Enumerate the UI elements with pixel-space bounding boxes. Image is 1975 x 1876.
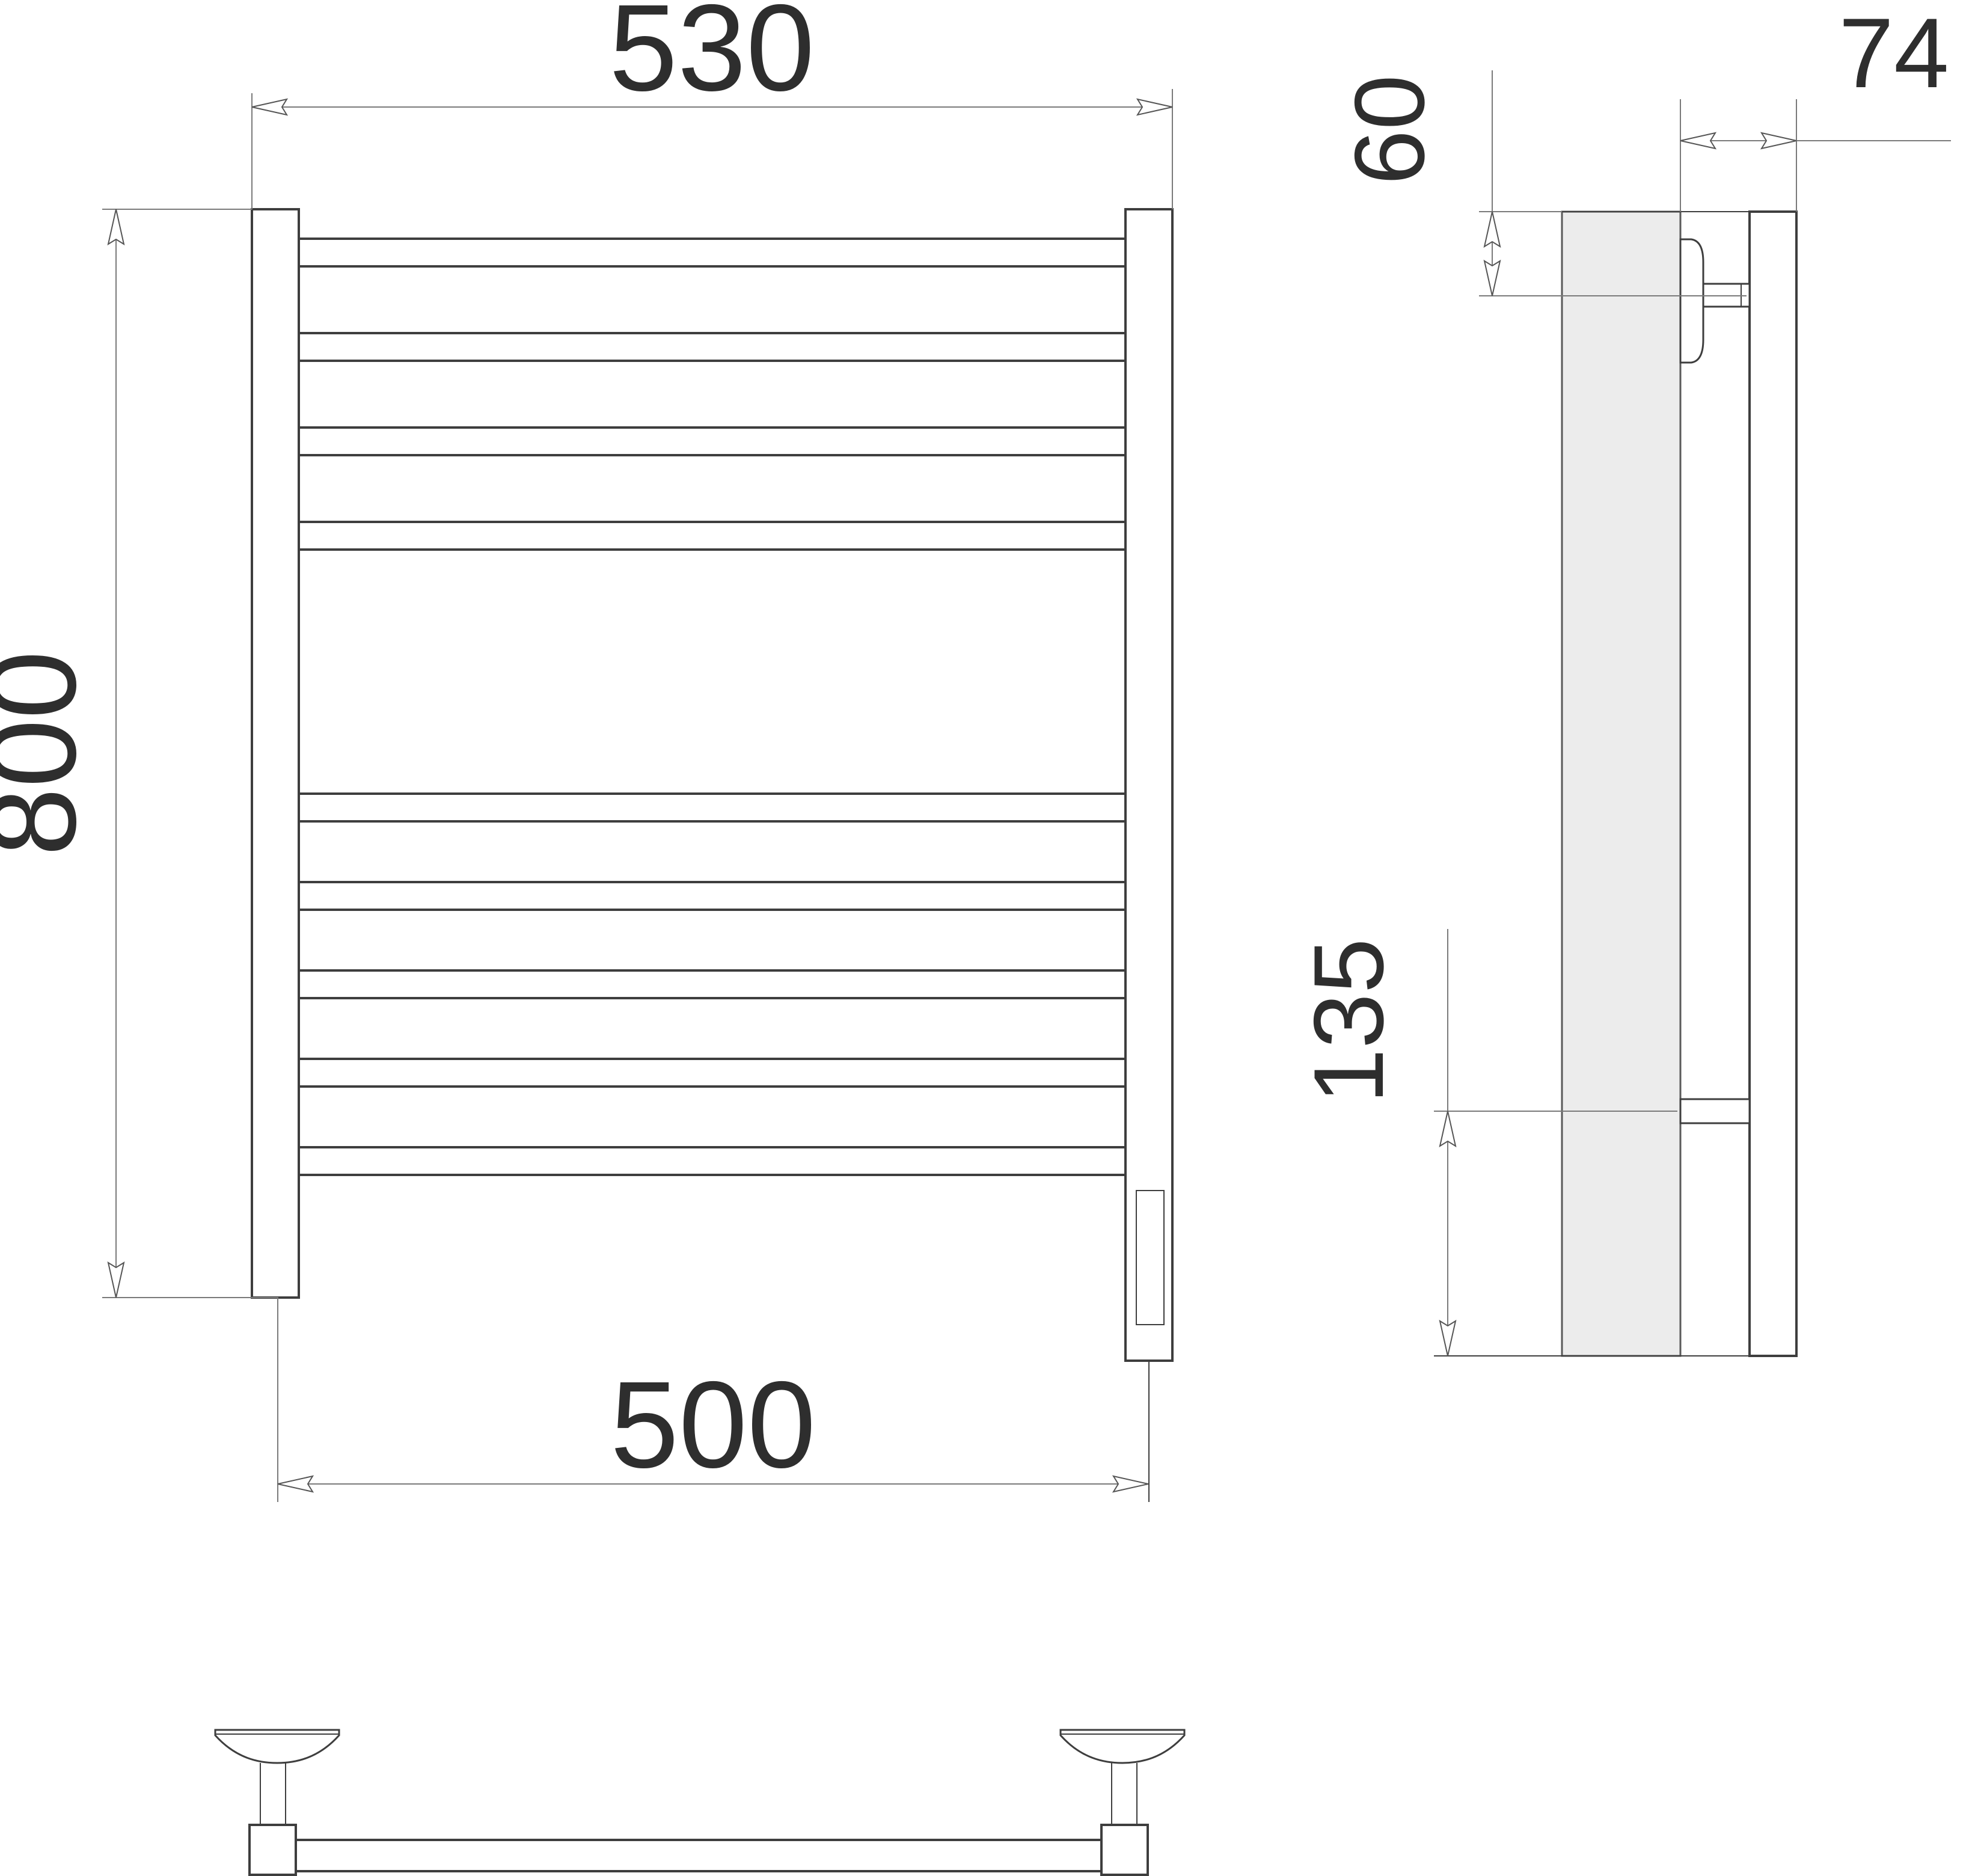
dim-60-text: 60: [1334, 75, 1445, 185]
rung-5: [299, 794, 1125, 821]
wall-section: [1562, 212, 1680, 1356]
rung-group: [299, 239, 1125, 1175]
dim-500-arrow-left: [278, 1476, 313, 1492]
side-view: [1434, 212, 1796, 1356]
rung-8: [299, 1059, 1125, 1087]
dim-135-arrow-top: [1440, 1111, 1456, 1146]
rung-6: [299, 882, 1125, 910]
dim-800-arrow-bottom: [108, 1263, 124, 1298]
drawing-sheet: 530 800 500 74: [0, 0, 1975, 1876]
rung-4: [299, 522, 1125, 550]
dim-74-text: 74: [1839, 0, 1949, 108]
rung-9: [299, 1147, 1125, 1175]
front-view: [252, 209, 1172, 1502]
rung-2: [299, 333, 1125, 361]
dim-530-arrow-right: [1138, 99, 1172, 115]
rung-1: [299, 239, 1125, 266]
towel-rail-technical-drawing: 530 800 500 74: [0, 0, 1975, 1876]
dim-74-arrow-right: [1762, 133, 1796, 149]
rung-3: [299, 428, 1125, 455]
bottom-left-collar: [250, 1825, 296, 1875]
dim-800: 800: [0, 209, 278, 1298]
bottom-right-collar: [1101, 1825, 1148, 1875]
dim-74-arrow-left: [1680, 133, 1715, 149]
bottom-bracket-arm: [1680, 1099, 1750, 1123]
bottom-left-escutcheon: [215, 1730, 339, 1763]
bottom-view-bar: [296, 1840, 1101, 1871]
dim-530-arrow-left: [252, 99, 287, 115]
top-bracket-escutcheon: [1680, 239, 1703, 363]
dim-500: 500: [278, 1298, 1148, 1502]
dim-500-arrow-right: [1113, 1476, 1148, 1492]
dim-60-arrow-bottom: [1484, 261, 1500, 296]
dim-530-text: 530: [609, 0, 815, 117]
side-post: [1750, 212, 1796, 1356]
dim-135-arrow-bottom: [1440, 1321, 1456, 1356]
dim-135-text: 135: [1293, 938, 1404, 1103]
dim-530: 530: [252, 0, 1172, 209]
front-left-post: [252, 209, 299, 1298]
dim-74: 74: [1680, 0, 1951, 212]
dim-500-text: 500: [610, 1356, 816, 1494]
dim-800-arrow-top: [108, 209, 124, 244]
bottom-view: [215, 1730, 1184, 1875]
dim-60-arrow-top: [1484, 212, 1500, 247]
dim-800-text: 800: [0, 651, 102, 856]
bottom-right-escutcheon: [1061, 1730, 1184, 1763]
rung-7: [299, 970, 1125, 998]
front-right-post: [1125, 209, 1172, 1361]
